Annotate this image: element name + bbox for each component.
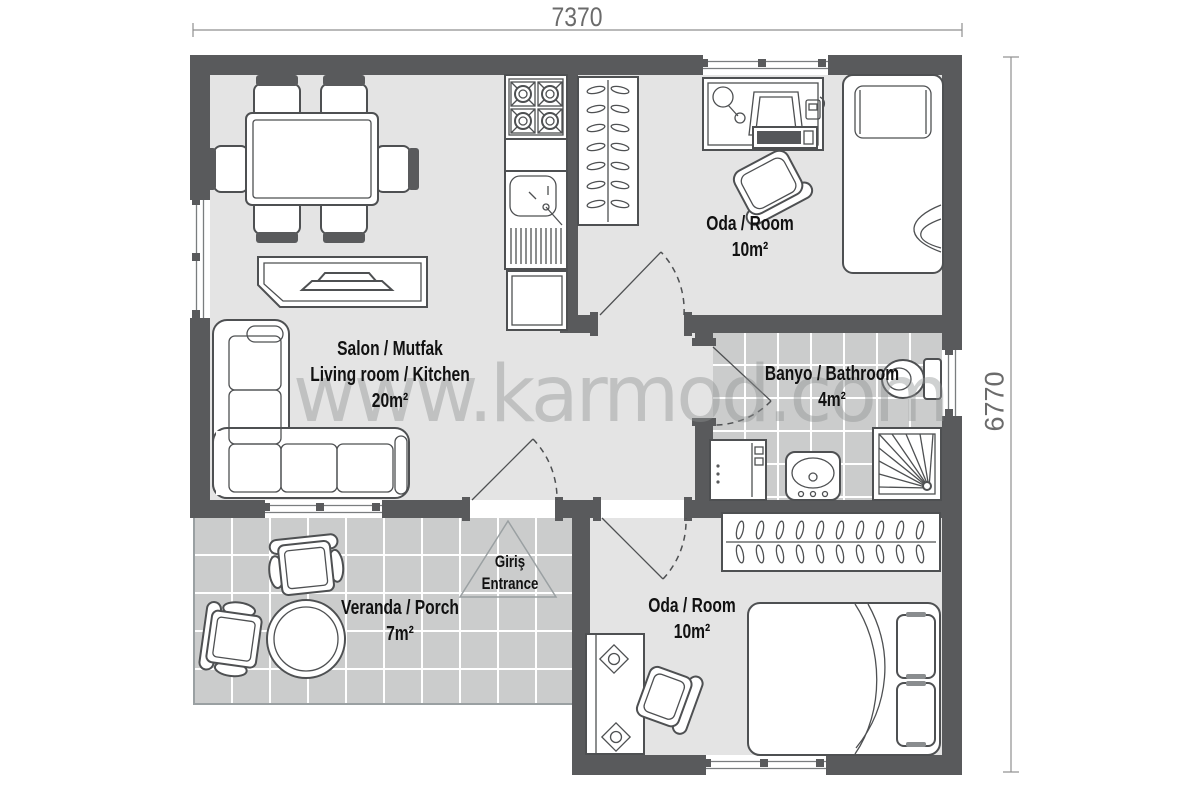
wall-bedroom-top-a	[560, 315, 598, 333]
entrance-name-en: Entrance	[448, 573, 573, 595]
living-room-name-tr: Salon / Mutfak	[296, 336, 483, 362]
bedroom-top-floor	[578, 75, 942, 315]
living-room-name-en: Living room / Kitchen	[296, 362, 483, 388]
wall-mid-a	[190, 500, 265, 518]
wall-divider-living-bedroom	[560, 75, 578, 315]
wall-bottom-right	[826, 755, 962, 775]
wall-left-lower	[190, 318, 210, 515]
window-bottom	[703, 755, 826, 775]
bathroom-name: Banyo / Bathroom	[738, 361, 925, 387]
wall-divider-veranda-bedroom	[572, 518, 590, 755]
wall-right-lower	[942, 416, 962, 775]
bedroom-bottom-area: 10m²	[598, 619, 785, 645]
wall-right-upper	[942, 55, 962, 350]
bedroom-top-area: 10m²	[656, 237, 843, 263]
wall-mid-b	[382, 500, 470, 518]
bathroom-area: 4m²	[738, 387, 925, 413]
entrance-name-tr: Giriş	[448, 551, 573, 573]
dimension-top-value: 7370	[535, 2, 620, 33]
window-veranda	[262, 500, 382, 518]
wall-mid-c	[557, 500, 600, 518]
entrance-label: Giriş Entrance	[448, 551, 573, 595]
wall-mid-d	[686, 500, 942, 518]
window-left	[190, 197, 210, 318]
bathroom-label: Banyo / Bathroom 4m²	[738, 361, 925, 413]
window-top	[700, 55, 828, 75]
wall-bottom-left	[572, 755, 706, 775]
veranda-area: 7m²	[306, 621, 493, 647]
wall-bathroom-left-a	[695, 315, 713, 345]
bedroom-top-name: Oda / Room	[656, 211, 843, 237]
dimension-right-value: 6770	[980, 352, 1011, 452]
bedroom-top-label: Oda / Room 10m²	[656, 211, 843, 263]
wall-bedroom-top-b	[684, 315, 942, 333]
bedroom-bottom-name: Oda / Room	[598, 593, 785, 619]
living-room-label: Salon / Mutfak Living room / Kitchen 20m…	[296, 336, 483, 414]
floor-plan: www.karmod.com Salon / Mutfak Living roo…	[0, 0, 1200, 800]
wall-top-left	[190, 55, 703, 75]
veranda-name: Veranda / Porch	[306, 595, 493, 621]
veranda-label: Veranda / Porch 7m²	[306, 595, 493, 647]
living-room-area: 20m²	[296, 388, 483, 414]
bedroom-bottom-label: Oda / Room 10m²	[598, 593, 785, 645]
wall-left-upper	[190, 55, 210, 200]
